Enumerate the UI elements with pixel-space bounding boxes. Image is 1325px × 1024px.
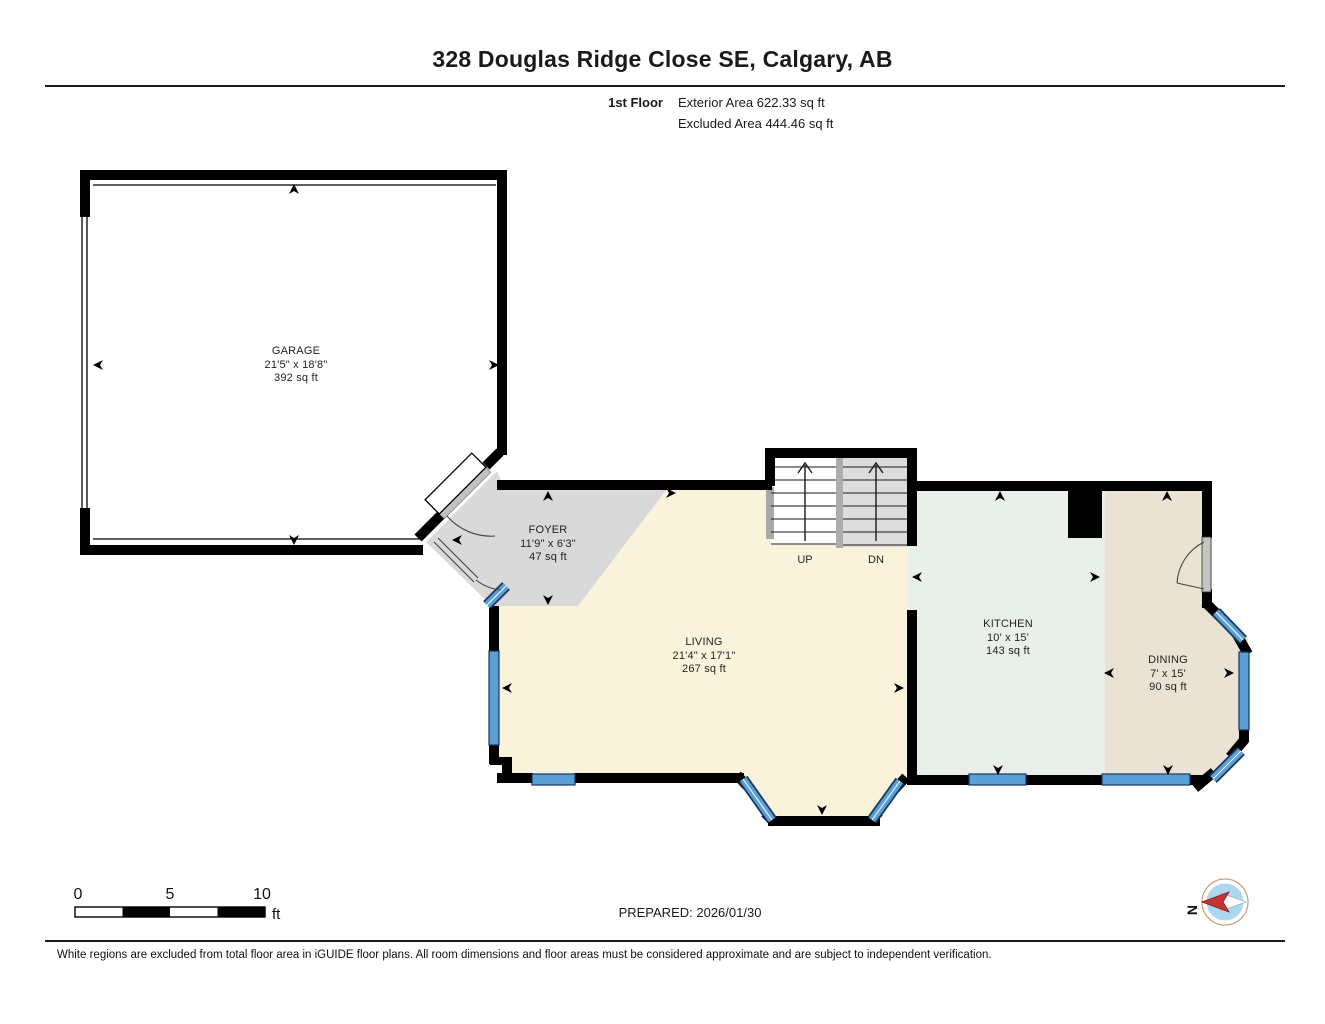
floor-plan-page: 328 Douglas Ridge Close SE, Calgary, AB …: [0, 0, 1325, 1024]
foyer-label: FOYER 11'9" x 6'3" 47 sq ft: [468, 524, 628, 565]
stair-left-halfwall: [766, 487, 774, 539]
room-name: DINING: [1088, 654, 1248, 668]
room-dims: 7' x 15': [1088, 668, 1248, 682]
room-name: LIVING: [624, 636, 784, 650]
room-dims: 21'5" x 18'8": [216, 359, 376, 373]
compass-icon: N: [1184, 879, 1248, 925]
staircase: [766, 455, 908, 548]
scale-tick-10: 10: [253, 886, 271, 903]
stair-divider: [836, 455, 843, 548]
room-name: KITCHEN: [928, 618, 1088, 632]
scale-bar: 0 5 10 ft: [74, 886, 282, 923]
room-area: 90 sq ft: [1088, 681, 1248, 695]
garage-label: GARAGE 21'5" x 18'8" 392 sq ft: [216, 345, 376, 386]
stairs-up-label: UP: [785, 554, 825, 566]
room-area: 143 sq ft: [928, 645, 1088, 659]
stairs-down-label: DN: [856, 554, 896, 566]
living-bottom-window: [532, 774, 575, 785]
scale-tick-0: 0: [74, 886, 83, 903]
kitchen-pillar: [1068, 481, 1102, 538]
room-area: 267 sq ft: [624, 663, 784, 677]
compass-north-label: N: [1184, 905, 1200, 915]
room-area: 47 sq ft: [468, 551, 628, 565]
room-area: 392 sq ft: [216, 372, 376, 386]
room-dims: 21'4" x 17'1": [624, 650, 784, 664]
floor-plan-drawing: 0 5 10 ft N: [0, 0, 1325, 1024]
room-name: FOYER: [468, 524, 628, 538]
room-dims: 11'9" x 6'3": [468, 538, 628, 552]
dining-patio-door: [1202, 537, 1211, 592]
room-name: GARAGE: [216, 345, 376, 359]
dining-floor: [1105, 485, 1248, 782]
scale-unit: ft: [272, 906, 281, 923]
scale-tick-5: 5: [166, 886, 175, 903]
prepared-date: PREPARED: 2026/01/30: [560, 905, 820, 920]
footer-divider: [45, 940, 1285, 942]
kitchen-label: KITCHEN 10' x 15' 143 sq ft: [928, 618, 1088, 659]
kitchen-bottom-window: [969, 774, 1026, 785]
dining-label: DINING 7' x 15' 90 sq ft: [1088, 654, 1248, 695]
room-dims: 10' x 15': [928, 632, 1088, 646]
living-left-window: [489, 651, 499, 745]
dining-bottom-window: [1102, 774, 1190, 785]
footer-disclaimer: White regions are excluded from total fl…: [57, 949, 1285, 961]
living-label: LIVING 21'4" x 17'1" 267 sq ft: [624, 636, 784, 677]
